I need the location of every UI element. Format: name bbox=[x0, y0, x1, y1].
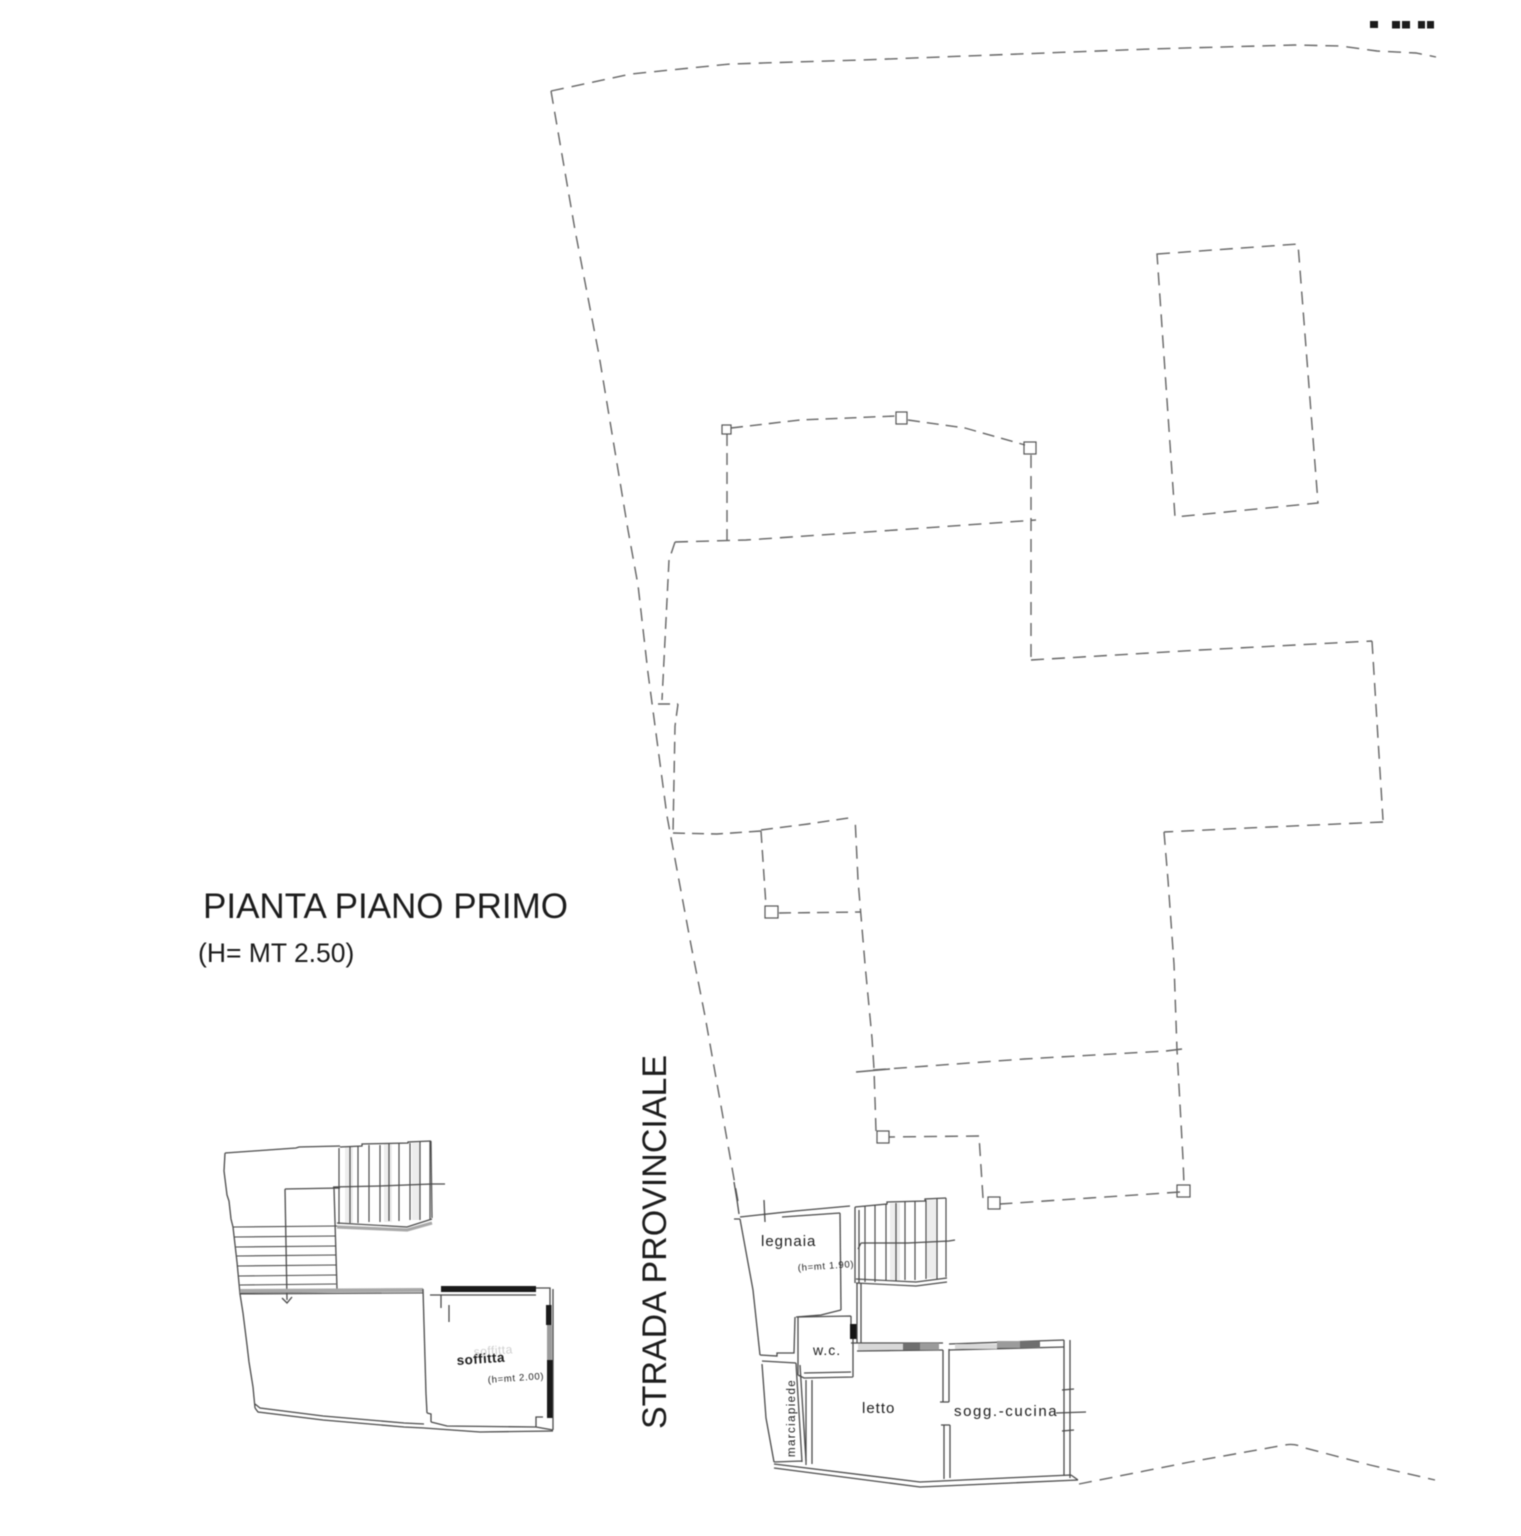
svg-text:sogg.-cucina: sogg.-cucina bbox=[954, 1403, 1058, 1420]
svg-text:(h=mt 2.00): (h=mt 2.00) bbox=[487, 1371, 544, 1386]
svg-text:marciapiede: marciapiede bbox=[786, 1379, 798, 1457]
svg-text:legnaia: legnaia bbox=[761, 1233, 816, 1250]
svg-text:w.c.: w.c. bbox=[812, 1342, 841, 1358]
svg-text:(H= MT 2.50): (H= MT 2.50) bbox=[198, 938, 354, 968]
svg-text:soffitta: soffitta bbox=[473, 1342, 513, 1359]
svg-text:(h=mt 1.90): (h=mt 1.90) bbox=[797, 1259, 854, 1274]
svg-text:PIANTA PIANO PRIMO: PIANTA PIANO PRIMO bbox=[203, 887, 568, 926]
svg-text:letto: letto bbox=[862, 1400, 895, 1417]
svg-text:STRADA PROVINCIALE: STRADA PROVINCIALE bbox=[636, 1055, 674, 1429]
